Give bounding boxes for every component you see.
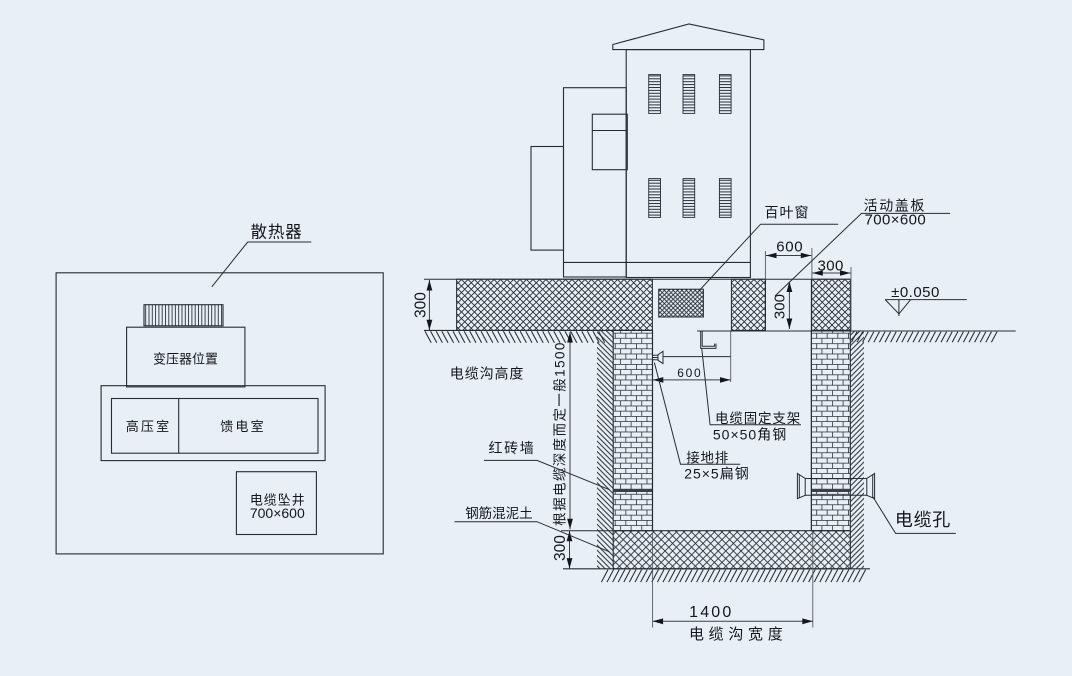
svg-text:700×600: 700×600 — [865, 211, 927, 228]
svg-text:接地排: 接地排 — [686, 450, 729, 466]
svg-text:300: 300 — [771, 294, 788, 319]
svg-text:300: 300 — [817, 258, 843, 275]
svg-text:馈电室: 馈电室 — [220, 419, 266, 434]
svg-text:电缆沟宽度: 电缆沟宽度 — [689, 626, 788, 643]
svg-text:高压室: 高压室 — [126, 419, 172, 434]
svg-text:300: 300 — [552, 535, 569, 561]
svg-text:钢筋混泥土: 钢筋混泥土 — [465, 505, 533, 521]
svg-text:电缆孔: 电缆孔 — [895, 510, 951, 530]
svg-text:根据电缆深度而定一般1500: 根据电缆深度而定一般1500 — [553, 341, 568, 526]
svg-text:600: 600 — [677, 366, 702, 380]
svg-text:300: 300 — [413, 292, 430, 318]
svg-text:散热器: 散热器 — [251, 222, 303, 241]
svg-text:600: 600 — [776, 239, 803, 256]
svg-text:百叶窗: 百叶窗 — [765, 204, 810, 220]
svg-text:25×5扁钢: 25×5扁钢 — [684, 466, 750, 482]
svg-text:红砖墙: 红砖墙 — [489, 440, 536, 456]
svg-text:电缆固定支架: 电缆固定支架 — [715, 411, 801, 426]
svg-text:700×600: 700×600 — [250, 505, 305, 521]
svg-text:50×50角钢: 50×50角钢 — [713, 426, 787, 442]
svg-text:±0.050: ±0.050 — [891, 284, 940, 301]
svg-text:电缆沟高度: 电缆沟高度 — [450, 365, 525, 381]
svg-text:1400: 1400 — [689, 604, 733, 621]
svg-text:变压器位置: 变压器位置 — [153, 351, 218, 366]
